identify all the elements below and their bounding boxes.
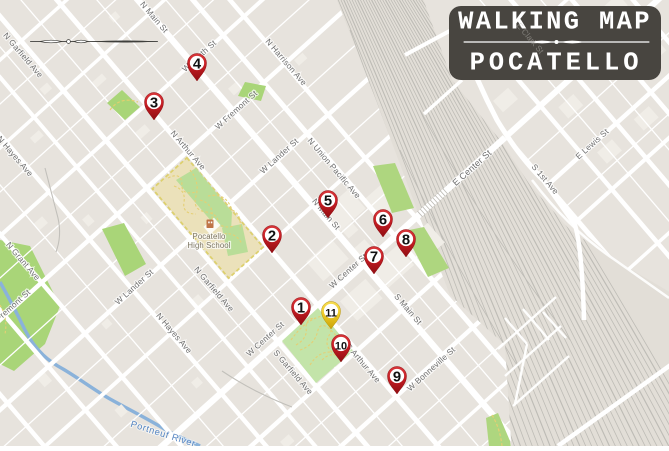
svg-text:4: 4 [193,56,202,72]
svg-text:11: 11 [325,307,337,319]
svg-text:3: 3 [150,95,158,111]
svg-text:Pocatello: Pocatello [193,232,227,241]
svg-text:High School: High School [187,241,230,250]
svg-text:9: 9 [393,369,401,385]
svg-text:1: 1 [297,300,305,316]
svg-text:WALKING MAP: WALKING MAP [458,7,652,36]
svg-text:10: 10 [335,340,347,352]
svg-text:7: 7 [370,249,378,265]
svg-text:8: 8 [402,232,410,248]
svg-text:6: 6 [379,212,387,228]
svg-text:POCATELLO: POCATELLO [470,49,643,78]
svg-text:5: 5 [324,193,332,209]
svg-text:2: 2 [268,228,276,244]
